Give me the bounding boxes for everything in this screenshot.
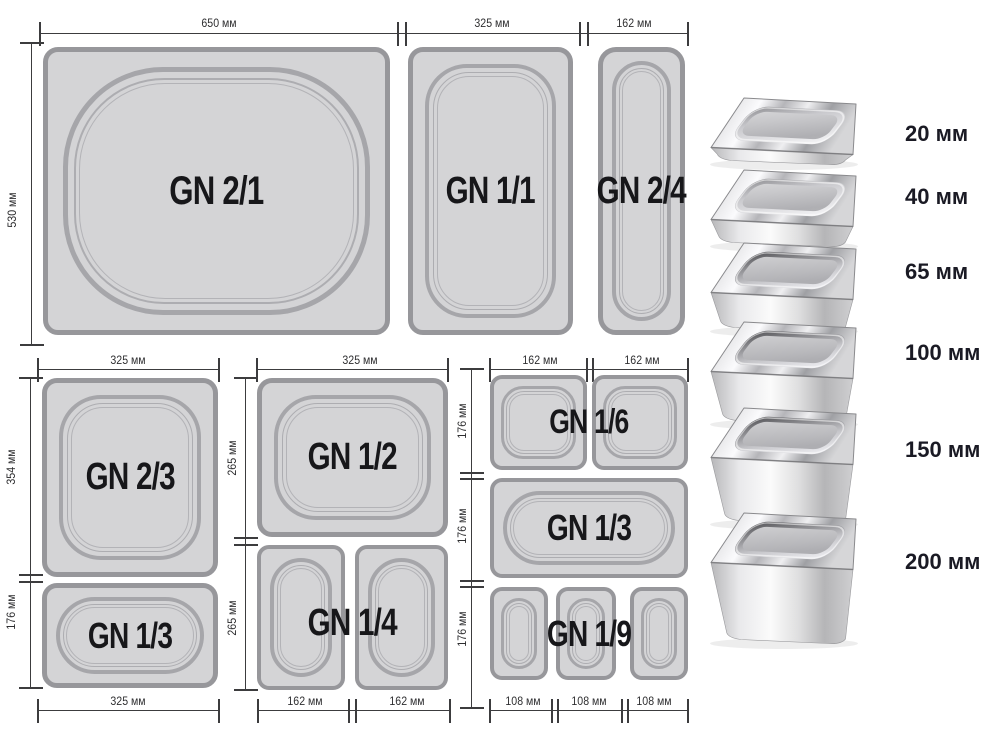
dimension-tick: [19, 574, 43, 576]
pan-inner-ring: [611, 394, 669, 451]
dimension-tick: [460, 478, 484, 480]
dimension-label-325: 325 мм: [328, 354, 392, 368]
pan-inner-ring: [378, 568, 425, 667]
dimension-line-bm-heights: [245, 378, 246, 690]
pan-outline-gn-2-3: [42, 378, 218, 577]
pan-outline-gn-2-1: [43, 47, 390, 335]
dimension-label-162: 162 мм: [508, 354, 572, 368]
dimension-tick: [687, 22, 689, 46]
dimension-tick: [355, 699, 357, 723]
dimension-label-265: 265 мм: [226, 586, 240, 650]
dimension-label-176: 176 мм: [456, 494, 470, 558]
dimension-label-176: 176 мм: [456, 597, 470, 661]
dimension-tick: [20, 344, 44, 346]
dimension-line-br-bottom: [490, 710, 688, 711]
dimension-tick: [397, 22, 399, 46]
dimension-tick: [234, 537, 258, 539]
dimension-label-162: 162 мм: [602, 17, 666, 31]
dimension-tick: [489, 358, 491, 382]
dimension-label-176: 176 мм: [5, 580, 19, 644]
dimension-label-530: 530 мм: [6, 178, 20, 242]
pan-outline-gn-1-4-right: [355, 545, 448, 690]
dimension-line-bm-bottom: [258, 710, 450, 711]
pan-inner-ring: [509, 394, 568, 451]
dimension-label-162: 162 мм: [273, 695, 337, 709]
pan-inner-ring: [286, 407, 419, 508]
dimension-tick: [234, 689, 258, 691]
dimension-tick: [687, 358, 689, 382]
pan-inner-ring: [437, 76, 544, 306]
pan-outline-gn-1-9-left: [490, 587, 548, 680]
dimension-line-bl-heights: [30, 378, 31, 688]
gn-size-diagram: 650 мм 325 мм 162 мм 530 мм GN 2/1 GN 1/…: [0, 0, 998, 734]
dimension-tick: [579, 22, 581, 46]
depth-label-40: 40 мм: [905, 183, 998, 211]
dimension-line-bl-bottom: [38, 710, 219, 711]
dimension-label-650: 650 мм: [187, 17, 251, 31]
dimension-line-bm-top: [257, 369, 448, 370]
dimension-label-176: 176 мм: [456, 389, 470, 453]
pan-inner-ring: [509, 606, 529, 661]
dimension-tick: [449, 699, 451, 723]
pan-inner-ring: [79, 83, 354, 299]
depth-label-20: 20 мм: [905, 120, 998, 148]
pan-inner-ring: [575, 606, 597, 661]
pan-outline-gn-1-4-left: [257, 545, 345, 690]
dimension-line-br-heights: [471, 369, 472, 708]
depth-label-150: 150 мм: [905, 436, 998, 464]
depth-label-65: 65 мм: [905, 258, 998, 286]
dimension-tick: [19, 377, 43, 379]
pan-outline-gn-1-9-right: [630, 587, 688, 680]
dimension-label-162: 162 мм: [610, 354, 674, 368]
pan-outline-gn-1-3-small: [490, 478, 688, 578]
pan-inner-ring: [280, 568, 322, 667]
pan-inner-ring: [622, 71, 661, 311]
dimension-label-325: 325 мм: [96, 695, 160, 709]
pan-outline-gn-1-1: [408, 47, 573, 335]
dimension-tick: [37, 699, 39, 723]
dimension-label-354: 354 мм: [5, 435, 19, 499]
dimension-tick: [592, 358, 594, 382]
dimension-label-108: 108 мм: [622, 695, 686, 709]
dimension-tick: [218, 358, 220, 382]
dimension-tick: [234, 377, 258, 379]
depth-label-100: 100 мм: [905, 339, 998, 367]
pan-illustration: [702, 505, 892, 657]
dimension-tick: [460, 368, 484, 370]
dimension-tick: [460, 707, 484, 709]
dimension-label-325: 325 мм: [460, 17, 524, 31]
pan-inner-ring: [649, 606, 669, 661]
pan-outline-gn-1-6-right: [592, 375, 688, 470]
dimension-tick: [587, 22, 589, 46]
dimension-label-108: 108 мм: [491, 695, 555, 709]
pan-outline-gn-2-4: [598, 47, 685, 335]
dimension-line-bl-top: [38, 369, 219, 370]
pan-outline-gn-1-9-middle: [556, 587, 616, 680]
dimension-tick: [20, 42, 44, 44]
dimension-tick: [257, 699, 259, 723]
dimension-tick: [447, 358, 449, 382]
dimension-line-top-widths: [40, 33, 688, 34]
pan-inner-ring: [513, 501, 665, 555]
dimension-label-108: 108 мм: [557, 695, 621, 709]
dimension-tick: [218, 699, 220, 723]
dimension-tick: [586, 358, 588, 382]
pan-outline-gn-1-2: [257, 378, 448, 537]
pan-outline-gn-1-3: [42, 583, 218, 688]
dimension-tick: [460, 586, 484, 588]
depth-label-200: 200 мм: [905, 548, 998, 576]
dimension-line-top-height: [31, 43, 32, 345]
dimension-label-325: 325 мм: [96, 354, 160, 368]
dimension-label-265: 265 мм: [226, 426, 240, 490]
dimension-tick: [19, 687, 43, 689]
dimension-tick: [348, 699, 350, 723]
dimension-tick: [460, 472, 484, 474]
dimension-tick: [234, 544, 258, 546]
pan-inner-ring: [71, 407, 189, 548]
dimension-label-162: 162 мм: [375, 695, 439, 709]
pan-outline-gn-1-6-left: [490, 375, 587, 470]
dimension-tick: [460, 580, 484, 582]
dimension-tick: [19, 581, 43, 583]
dimension-line-br-top: [490, 369, 688, 370]
dimension-tick: [405, 22, 407, 46]
pan-inner-ring: [66, 607, 194, 664]
pan-photo-200mm: [702, 505, 892, 657]
dimension-tick: [687, 699, 689, 723]
